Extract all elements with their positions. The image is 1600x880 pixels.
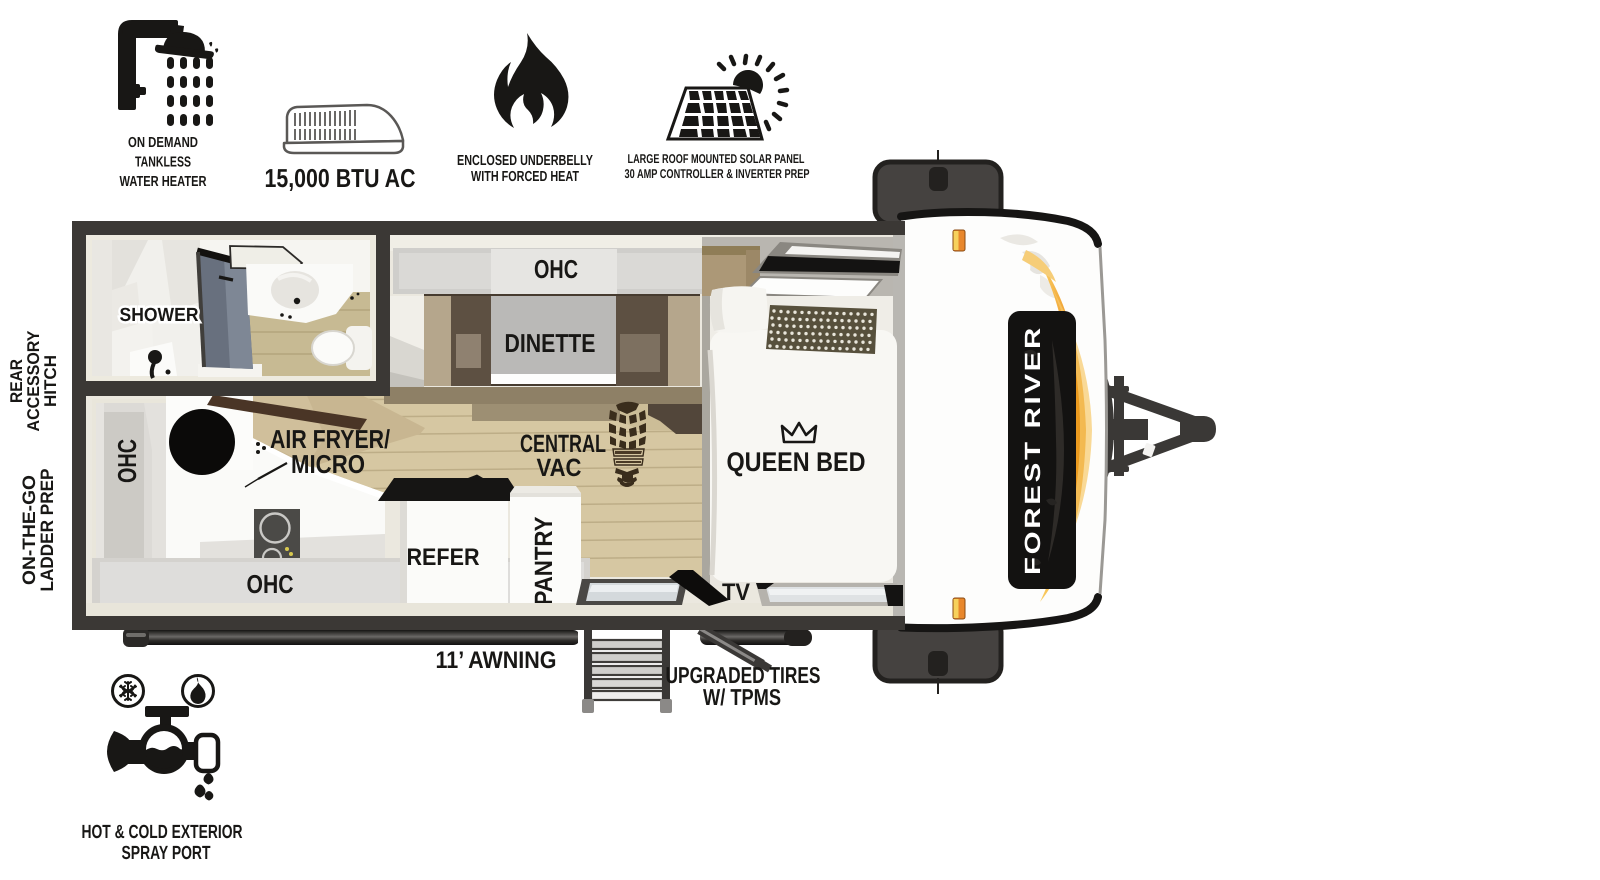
svg-text:ON DEMAND: ON DEMAND [128,135,198,151]
svg-text:HITCH: HITCH [41,355,60,407]
svg-text:REFER: REFER [407,544,480,571]
svg-text:30 AMP CONTROLLER & INVERTER P: 30 AMP CONTROLLER & INVERTER PREP [625,166,810,181]
svg-text:QUEEN BED: QUEEN BED [727,447,866,477]
svg-text:WITH FORCED HEAT: WITH FORCED HEAT [471,169,579,185]
svg-text:ON-THE-GO: ON-THE-GO [19,475,39,585]
svg-text:W/ TPMS: W/ TPMS [703,684,781,710]
svg-text:SPRAY PORT: SPRAY PORT [122,843,211,864]
svg-text:VAC: VAC [537,454,582,482]
svg-text:TV: TV [722,579,750,606]
svg-text:LADDER PREP: LADDER PREP [37,469,57,592]
svg-text:HOT & COLD EXTERIOR: HOT & COLD EXTERIOR [82,822,243,843]
svg-text:FOREST RIVER: FOREST RIVER [1020,325,1045,575]
svg-text:LARGE ROOF MOUNTED SOLAR PANEL: LARGE ROOF MOUNTED SOLAR PANEL [628,151,805,166]
svg-text:PANTRY: PANTRY [530,516,558,605]
svg-text:11’ AWNING: 11’ AWNING [436,647,557,674]
svg-text:OHC: OHC [112,439,142,483]
svg-text:15,000 BTU AC: 15,000 BTU AC [265,163,416,193]
svg-text:TANKLESS: TANKLESS [135,155,191,171]
svg-text:WATER HEATER: WATER HEATER [120,174,207,190]
svg-text:DINETTE: DINETTE [505,328,596,358]
svg-text:OHC: OHC [534,254,578,284]
svg-text:ENCLOSED UNDERBELLY: ENCLOSED UNDERBELLY [457,153,593,169]
svg-text:SHOWER: SHOWER [120,305,199,326]
svg-text:OHC: OHC [247,569,294,599]
svg-text:MICRO: MICRO [291,449,365,479]
